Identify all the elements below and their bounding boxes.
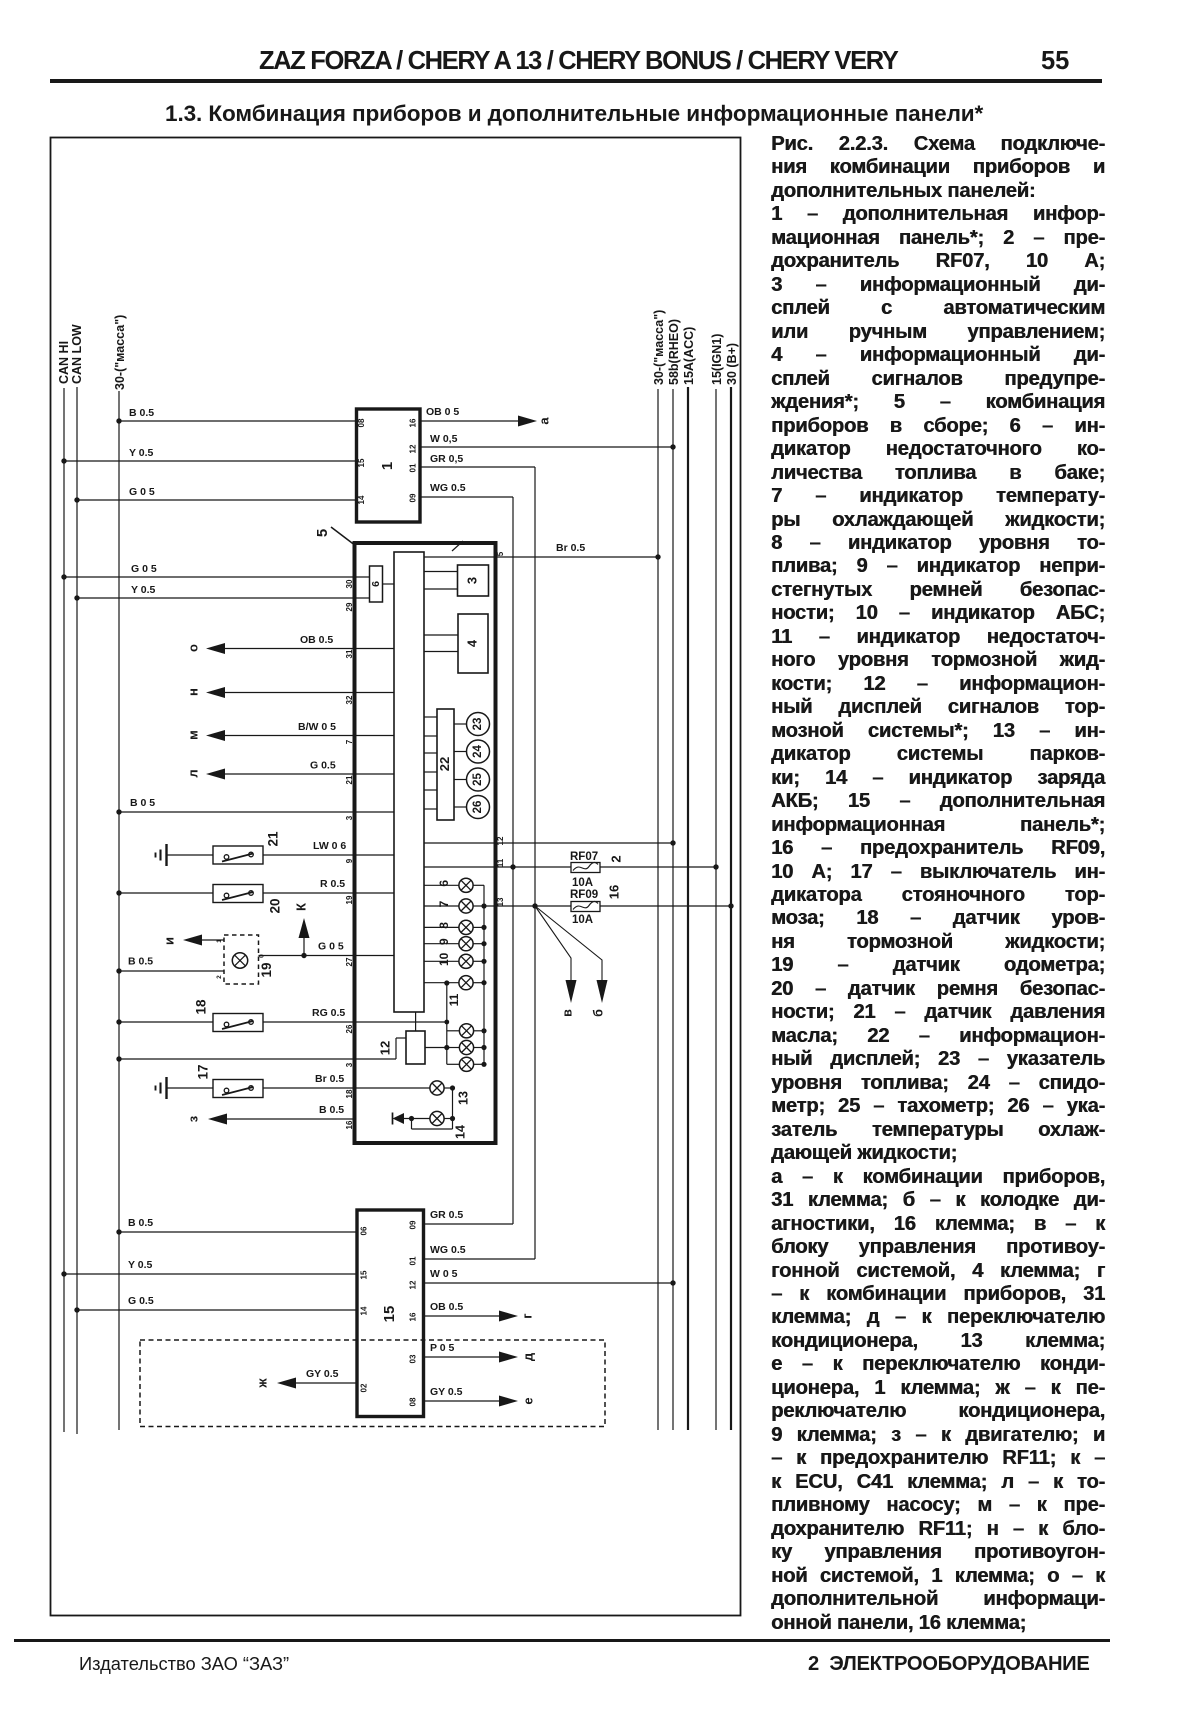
svg-text:1: 1 [379,462,396,470]
svg-text:GR 0,5: GR 0,5 [430,453,463,465]
svg-text:10A: 10A [572,877,593,889]
svg-text:е: е [520,1397,535,1404]
svg-text:12: 12 [377,1041,392,1055]
svg-text:Y 0.5: Y 0.5 [129,447,153,459]
svg-text:09: 09 [409,493,418,502]
svg-text:P 0 5: P 0 5 [430,1342,454,1354]
svg-text:32: 32 [345,695,354,704]
svg-text:11: 11 [447,993,461,1006]
svg-text:01: 01 [409,1256,418,1265]
svg-text:12: 12 [409,1280,418,1289]
svg-text:01: 01 [409,463,418,472]
svg-text:3: 3 [345,1062,354,1067]
svg-text:G 0.5: G 0.5 [128,1295,154,1307]
svg-text:6: 6 [437,880,451,887]
svg-text:з: з [185,1115,200,1122]
svg-text:B 0.5: B 0.5 [319,1104,344,1116]
svg-text:LW 0 6: LW 0 6 [313,840,346,852]
svg-text:15: 15 [381,1306,398,1323]
svg-text:58b(RHEO): 58b(RHEO) [667,319,681,385]
svg-text:CAN HI: CAN HI [57,341,71,384]
svg-text:18: 18 [194,999,209,1015]
svg-text:14: 14 [453,1125,467,1139]
svg-text:4: 4 [464,639,479,647]
svg-text:R 0.5: R 0.5 [320,878,345,890]
svg-text:WG 0.5: WG 0.5 [430,482,466,494]
svg-text:26: 26 [345,1024,354,1033]
svg-text:9: 9 [345,858,354,863]
svg-text:К: К [293,903,308,911]
svg-text:2: 2 [216,975,223,979]
svg-text:W 0 5: W 0 5 [430,1268,458,1280]
svg-text:6: 6 [370,581,382,587]
svg-text:Y 0.5: Y 0.5 [131,584,155,596]
svg-text:19: 19 [259,962,274,977]
svg-text:12: 12 [496,836,505,845]
svg-text:G 0 5: G 0 5 [318,941,344,953]
svg-text:11: 11 [496,858,505,867]
svg-text:08: 08 [409,1397,418,1406]
svg-text:и: и [161,937,176,945]
svg-text:W 0,5: W 0,5 [430,433,458,445]
svg-text:19: 19 [345,895,354,904]
svg-text:B/W 0 5: B/W 0 5 [298,721,336,733]
svg-text:15(IGN1): 15(IGN1) [710,334,724,385]
svg-text:25: 25 [472,773,484,786]
svg-text:WG 0.5: WG 0.5 [430,1244,466,1256]
svg-text:B 0 5: B 0 5 [130,797,155,809]
svg-text:RG 0.5: RG 0.5 [312,1007,345,1019]
svg-text:G 0 5: G 0 5 [131,563,157,575]
svg-text:Y 0.5: Y 0.5 [128,1259,152,1271]
svg-text:м: м [185,730,200,740]
svg-text:5: 5 [314,529,331,537]
svg-text:22: 22 [437,757,452,771]
svg-text:7: 7 [437,900,451,907]
svg-text:31: 31 [345,649,354,658]
svg-text:08: 08 [357,418,366,427]
svg-text:в: в [560,1009,574,1017]
svg-text:16: 16 [409,1312,418,1321]
svg-text:16: 16 [606,885,621,899]
svg-text:2: 2 [608,855,623,862]
svg-text:RF07: RF07 [570,851,598,863]
svg-text:CAN LOW: CAN LOW [70,324,84,384]
svg-text:н: н [185,688,200,696]
svg-text:23: 23 [472,718,484,731]
svg-text:13: 13 [496,897,505,906]
svg-text:б: б [591,1009,605,1017]
svg-text:02: 02 [360,1383,369,1392]
svg-text:ж: ж [254,1378,269,1389]
svg-text:л: л [185,769,200,777]
svg-text:17: 17 [196,1064,211,1079]
svg-text:15A(ACC): 15A(ACC) [682,327,696,385]
svg-text:30: 30 [345,579,354,588]
svg-text:10: 10 [437,952,451,966]
svg-text:8: 8 [437,922,451,929]
svg-text:Br 0.5: Br 0.5 [556,542,585,554]
svg-text:30-("масса"): 30-("масса") [652,310,666,385]
svg-text:21: 21 [345,775,354,784]
svg-text:27: 27 [345,957,354,966]
svg-text:RF09: RF09 [570,889,598,901]
svg-text:18: 18 [345,1089,354,1098]
svg-text:OB 0.5: OB 0.5 [430,1301,463,1313]
svg-text:GY 0.5: GY 0.5 [306,1368,339,1380]
svg-text:12: 12 [409,444,418,453]
svg-text:OB 0.5: OB 0.5 [300,634,333,646]
svg-text:B 0.5: B 0.5 [128,956,153,968]
svg-text:B 0.5: B 0.5 [129,407,154,419]
svg-text:3: 3 [464,577,479,584]
svg-text:10A: 10A [572,914,593,926]
svg-text:15: 15 [357,458,366,467]
svg-text:9: 9 [437,938,451,945]
svg-text:30-("масса"): 30-("масса") [113,315,127,390]
svg-text:03: 03 [409,1354,418,1363]
svg-text:26: 26 [472,801,484,814]
svg-text:GY 0.5: GY 0.5 [430,1386,463,1398]
svg-text:а: а [536,417,551,425]
svg-text:3: 3 [345,815,354,820]
svg-text:о: о [185,644,200,652]
svg-text:24: 24 [472,745,484,758]
svg-text:13: 13 [456,1091,470,1105]
svg-text:7: 7 [345,739,354,744]
svg-text:B 0.5: B 0.5 [128,1217,153,1229]
svg-text:16: 16 [345,1120,354,1129]
svg-text:G 0 5: G 0 5 [129,486,155,498]
svg-text:29: 29 [345,602,354,611]
svg-text:06: 06 [360,1226,369,1235]
svg-text:GR 0.5: GR 0.5 [430,1209,463,1221]
svg-text:16: 16 [409,418,418,427]
svg-text:14: 14 [357,495,366,504]
svg-text:21: 21 [266,831,281,847]
svg-text:Br 0.5: Br 0.5 [315,1073,344,1085]
svg-text:5: 5 [496,551,505,556]
svg-text:15: 15 [360,1270,369,1279]
svg-text:G 0.5: G 0.5 [310,760,336,772]
svg-text:14: 14 [360,1306,369,1315]
svg-text:д: д [520,1352,535,1361]
svg-text:20: 20 [268,898,283,913]
svg-text:OB 0 5: OB 0 5 [426,406,459,418]
svg-text:30 (B+): 30 (B+) [725,343,739,385]
svg-text:09: 09 [409,1220,418,1229]
svg-text:г: г [519,1313,534,1319]
